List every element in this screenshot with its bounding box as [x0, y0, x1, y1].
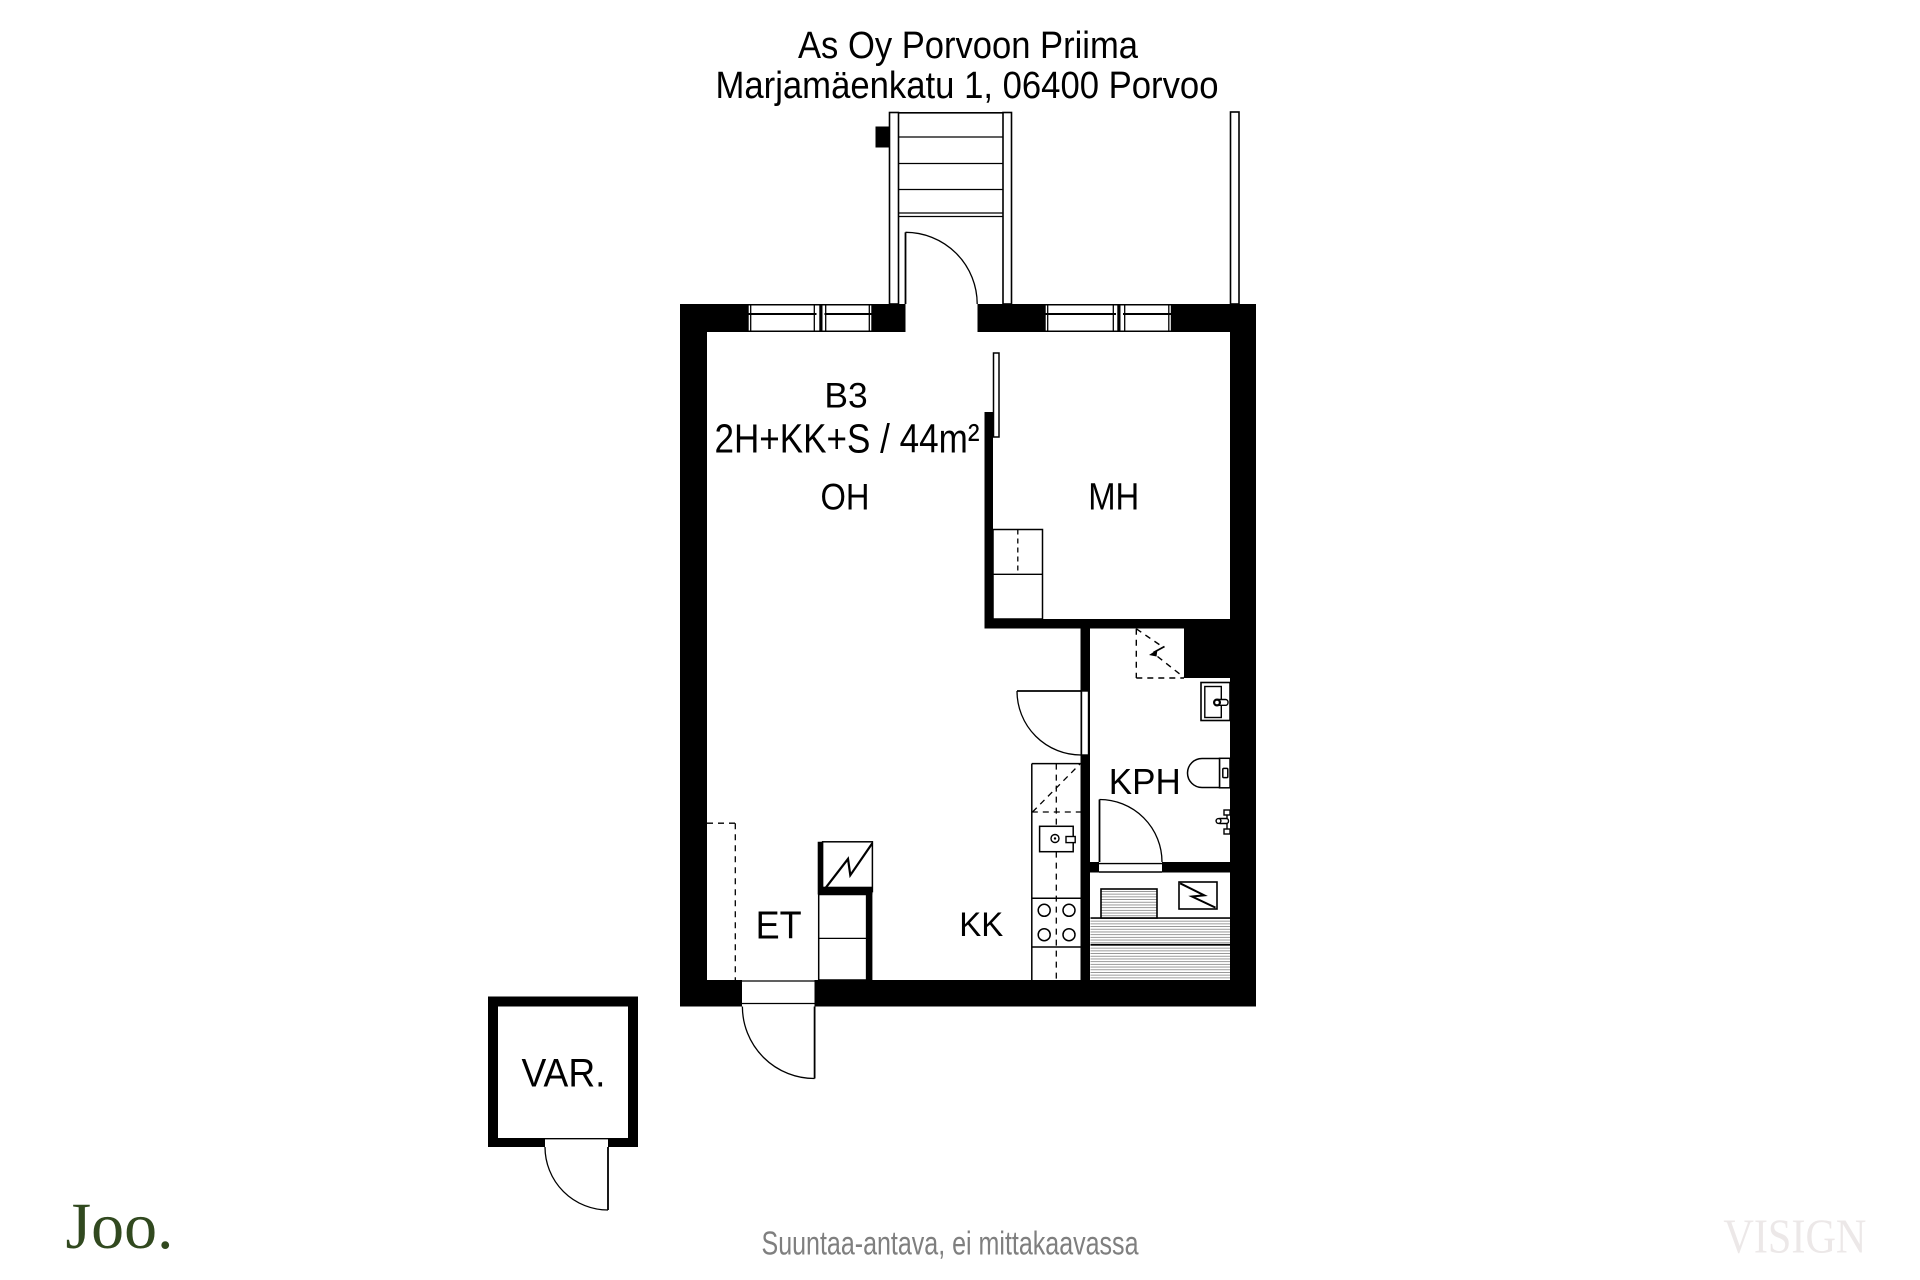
svg-text:VAR.: VAR. [522, 1051, 606, 1095]
svg-text:Joo.: Joo. [66, 1190, 174, 1263]
svg-text:As Oy Porvoon Priima: As Oy Porvoon Priima [798, 25, 1139, 67]
svg-text:OH: OH [821, 476, 870, 518]
svg-text:KK: KK [959, 906, 1003, 944]
svg-text:VISIGN: VISIGN [1723, 1208, 1866, 1263]
svg-text:MH: MH [1088, 477, 1139, 519]
svg-text:2H+KK+S / 44m²: 2H+KK+S / 44m² [715, 416, 980, 462]
svg-text:ET: ET [756, 904, 802, 947]
svg-text:Marjamäenkatu 1, 06400 Porvoo: Marjamäenkatu 1, 06400 Porvoo [716, 65, 1219, 107]
svg-text:KPH: KPH [1109, 761, 1181, 802]
svg-text:B3: B3 [824, 376, 867, 416]
svg-text:Suuntaa-antava, ei mittakaavas: Suuntaa-antava, ei mittakaavassa [762, 1224, 1139, 1261]
